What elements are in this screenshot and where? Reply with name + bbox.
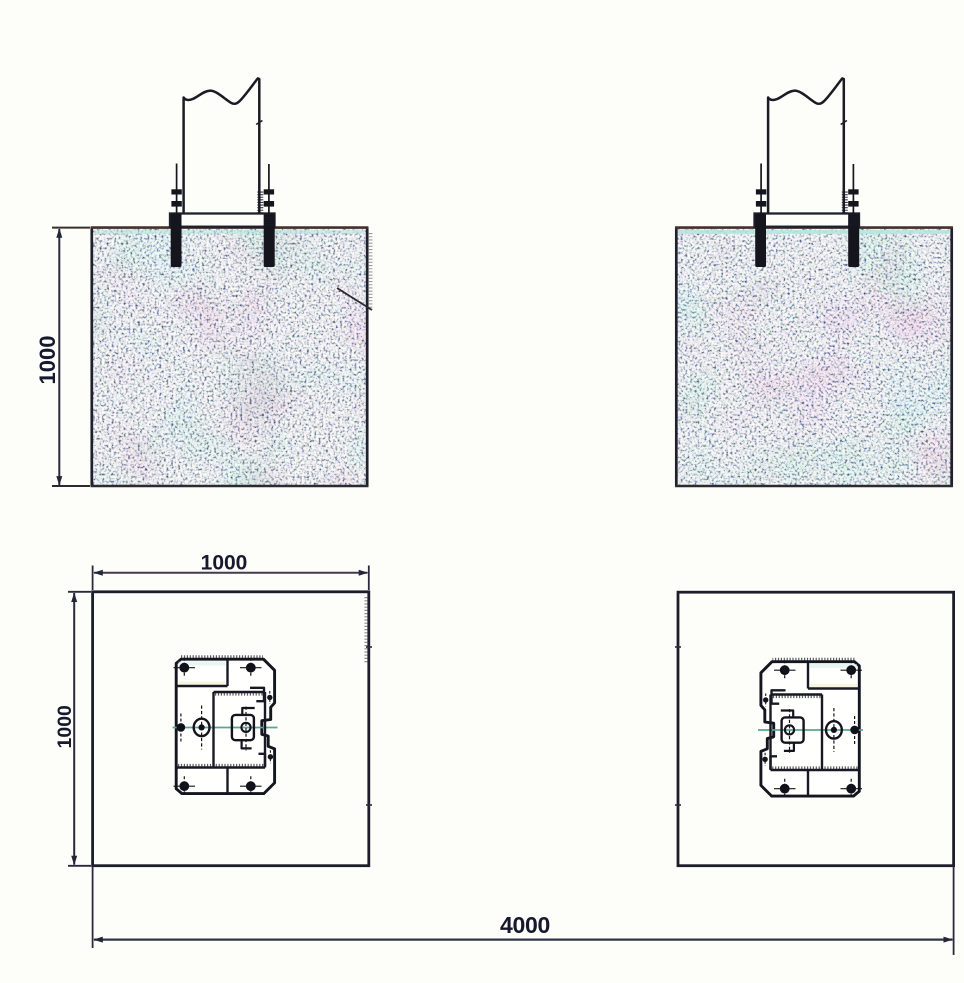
svg-text:1000: 1000: [54, 705, 76, 749]
svg-text:4000: 4000: [500, 912, 550, 938]
svg-text:1000: 1000: [35, 336, 60, 385]
svg-text:1000: 1000: [201, 552, 248, 575]
